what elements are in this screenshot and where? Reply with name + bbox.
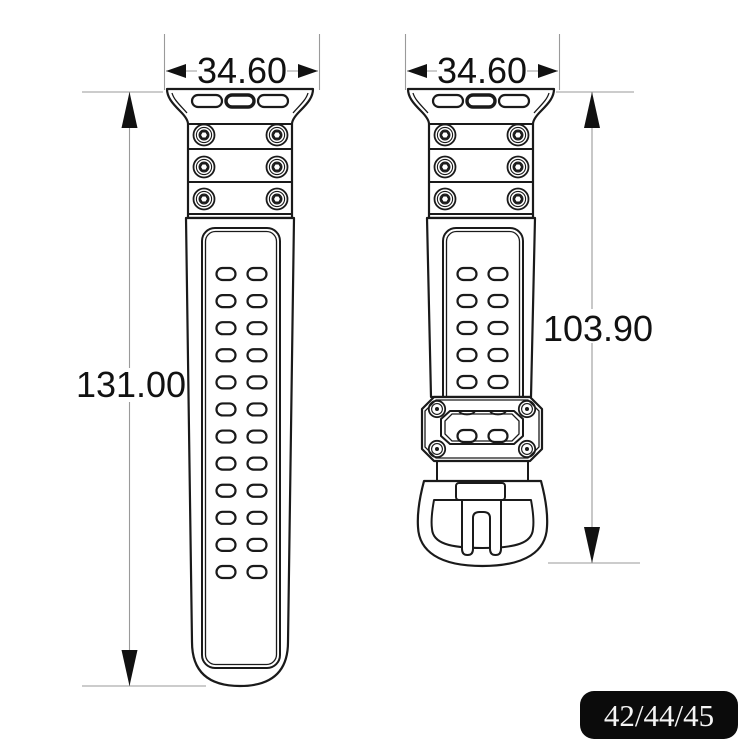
buckle	[418, 461, 547, 566]
watch-strap-technical-drawing: 34.60 34.60 131.00 103.90 42/44/45	[0, 0, 750, 750]
arrow-right-icon	[538, 64, 558, 78]
left-strap	[167, 89, 313, 686]
strap-hole	[248, 376, 267, 388]
strap-hole	[217, 539, 236, 551]
strap-hole	[458, 268, 477, 280]
strap-hole	[458, 322, 477, 334]
strap-hole	[248, 512, 267, 524]
dimension-right-width: 34.60	[406, 34, 560, 91]
strap-hole	[217, 268, 236, 280]
arrow-left-icon	[407, 64, 427, 78]
left-strap-adapter	[167, 89, 313, 218]
strap-hole	[248, 349, 267, 361]
strap-hole	[458, 349, 477, 361]
right-length-value: 103.90	[543, 308, 653, 349]
strap-hole	[217, 349, 236, 361]
arrow-down-icon	[584, 527, 600, 563]
strap-hole	[458, 295, 477, 307]
dimension-left-width: 34.60	[165, 34, 320, 91]
strap-hole	[489, 295, 508, 307]
keeper-window	[441, 411, 523, 444]
strap-hole	[489, 376, 508, 388]
strap-hole	[248, 295, 267, 307]
strap-hole	[217, 431, 236, 443]
dimension-right-length: 103.90	[543, 92, 653, 563]
left-width-value: 34.60	[197, 50, 287, 91]
strap-hole	[248, 458, 267, 470]
strap-hole	[248, 322, 267, 334]
strap-keeper	[422, 397, 542, 461]
strap-hole	[217, 512, 236, 524]
left-length-value: 131.00	[76, 364, 186, 405]
strap-hole	[248, 268, 267, 280]
right-strap	[408, 89, 554, 566]
strap-hole	[217, 458, 236, 470]
strap-hole	[489, 268, 508, 280]
strap-hole	[217, 485, 236, 497]
strap-hole	[489, 349, 508, 361]
arrow-left-icon	[166, 64, 186, 78]
arrow-up-icon	[584, 92, 600, 128]
size-badge: 42/44/45	[580, 691, 738, 739]
strap-hole	[217, 295, 236, 307]
dimension-left-length: 131.00	[76, 92, 206, 686]
arrow-down-icon	[122, 650, 138, 686]
arrow-up-icon	[122, 92, 138, 128]
drawing-canvas: 34.60 34.60 131.00 103.90 42/44/45	[0, 0, 750, 750]
strap-hole	[217, 566, 236, 578]
strap-hole	[248, 403, 267, 415]
strap-hole	[248, 539, 267, 551]
strap-hole	[248, 431, 267, 443]
strap-hole	[248, 485, 267, 497]
strap-hole	[217, 403, 236, 415]
arrow-right-icon	[298, 64, 318, 78]
right-strap-adapter	[408, 89, 554, 218]
strap-hole	[489, 322, 508, 334]
right-width-value: 34.60	[437, 50, 527, 91]
buckle-prong-tab	[456, 483, 505, 500]
strap-hole	[217, 376, 236, 388]
strap-hole	[458, 376, 477, 388]
strap-hole	[248, 566, 267, 578]
strap-hole	[217, 322, 236, 334]
size-badge-label: 42/44/45	[604, 698, 714, 733]
